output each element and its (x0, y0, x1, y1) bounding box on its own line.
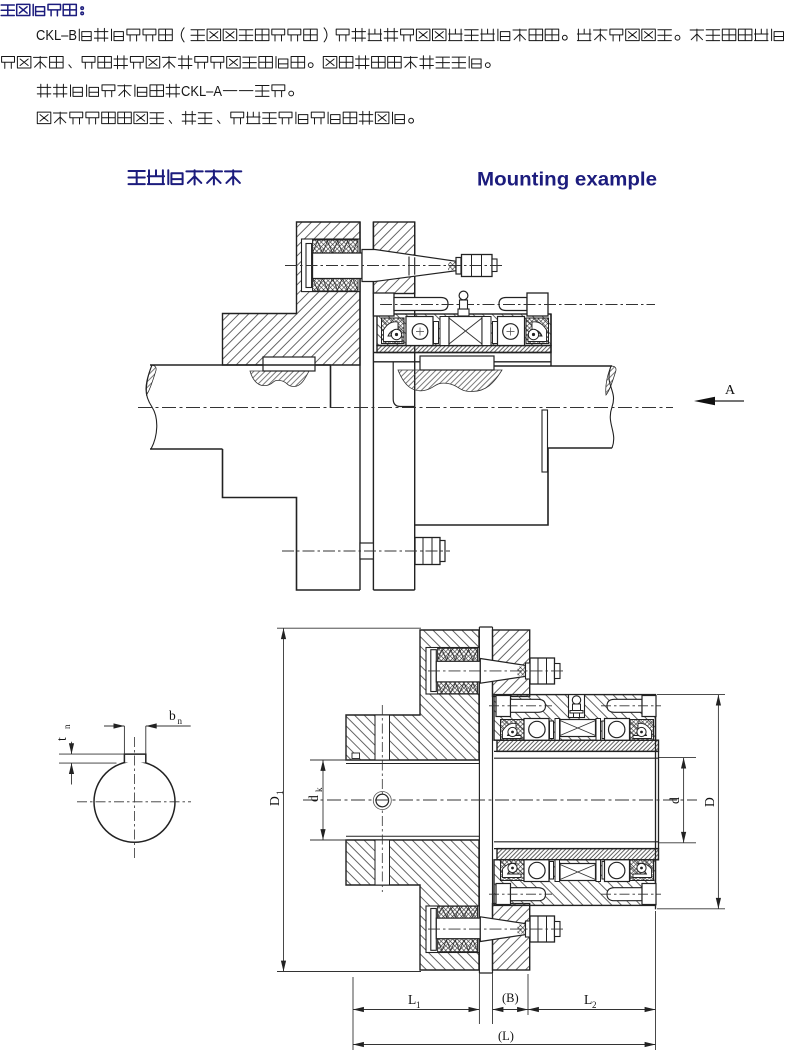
svg-text:1: 1 (275, 791, 285, 796)
svg-text:L: L (584, 992, 592, 1007)
svg-text:n: n (178, 716, 183, 726)
svg-text:CKL–B: CKL–B (36, 28, 77, 44)
svg-text:k: k (314, 787, 324, 792)
svg-text:(B): (B) (502, 991, 519, 1005)
svg-text:1: 1 (416, 1000, 421, 1010)
svg-text:b: b (169, 708, 176, 723)
svg-text:d: d (306, 795, 321, 802)
svg-text:CKL–A: CKL–A (181, 84, 222, 100)
svg-text:A: A (725, 383, 736, 398)
svg-text:(L): (L) (498, 1029, 514, 1043)
svg-text:n: n (62, 724, 72, 729)
svg-text:2: 2 (592, 1000, 597, 1010)
svg-text:L: L (408, 992, 416, 1007)
svg-text:D: D (267, 796, 282, 806)
svg-text:D: D (702, 797, 717, 807)
svg-text:Mounting example: Mounting example (477, 169, 657, 191)
svg-text:d: d (667, 797, 682, 804)
svg-text:t: t (54, 737, 69, 741)
